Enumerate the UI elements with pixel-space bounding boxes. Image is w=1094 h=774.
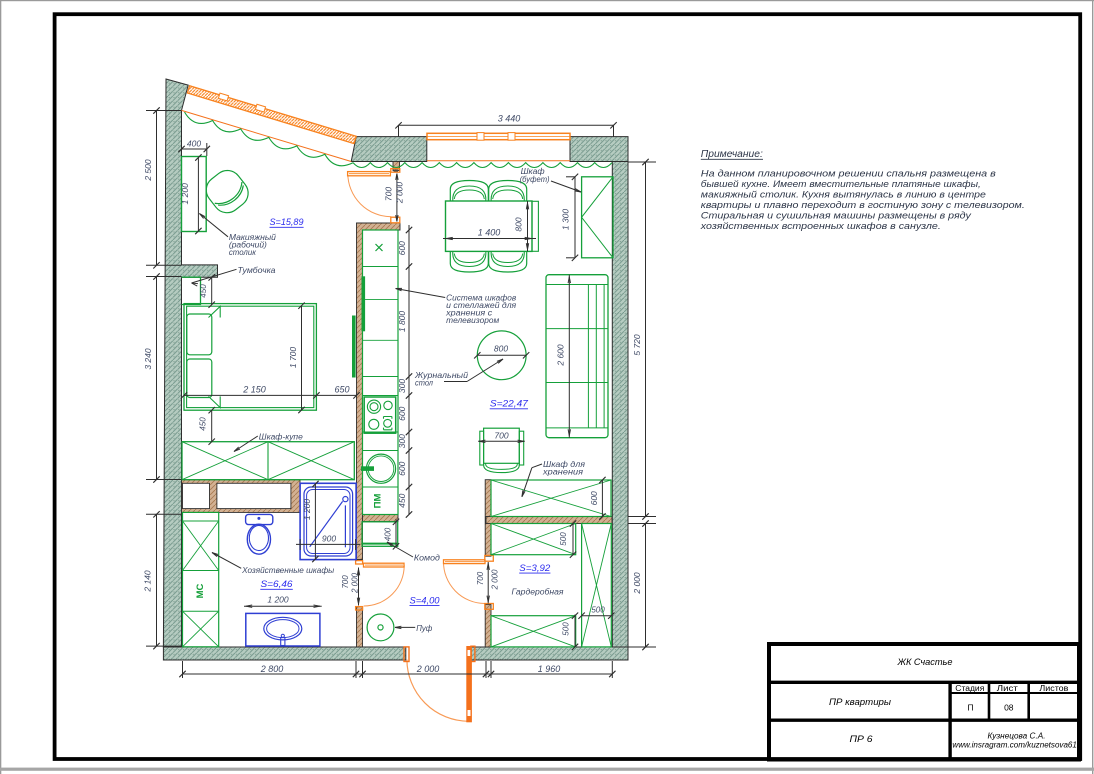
svg-text:стол: стол (415, 378, 434, 387)
svg-text:П: П (967, 703, 973, 713)
svg-text:Стиральная и сушильная машины: Стиральная и сушильная машины размещены … (701, 210, 973, 220)
svg-text:S=6,46: S=6,46 (261, 579, 294, 590)
svg-text:Хозяйственные шкафы: Хозяйственные шкафы (241, 566, 334, 575)
svg-text:1 800: 1 800 (397, 311, 407, 333)
svg-text:Пуф: Пуф (416, 624, 432, 633)
svg-text:Тумбочка: Тумбочка (238, 266, 277, 275)
svg-text:1 300: 1 300 (561, 209, 571, 231)
svg-text:квартиры и плавно переходит в: квартиры и плавно переходит в гостиную з… (701, 200, 1025, 210)
svg-text:1 200: 1 200 (180, 183, 190, 205)
svg-text:МС: МС (195, 583, 206, 598)
svg-text:500: 500 (559, 532, 568, 546)
svg-text:ЖК Счастье: ЖК Счастье (897, 657, 953, 668)
svg-text:бывшей кухне. Имеет вместитель: бывшей кухне. Имеет вместительные платян… (701, 179, 981, 189)
svg-text:800: 800 (514, 217, 524, 231)
svg-text:Примечание:: Примечание: (701, 149, 763, 160)
svg-text:400: 400 (384, 527, 393, 541)
svg-text:хранения: хранения (542, 468, 584, 477)
svg-text:1 200: 1 200 (302, 499, 312, 521)
svg-text:S=3,92: S=3,92 (519, 563, 551, 574)
svg-text:(буфет): (буфет) (520, 175, 550, 184)
svg-text:На данном планировочном решени: На данном планировочном решении спальня … (701, 169, 996, 179)
svg-text:телевизором: телевизором (446, 316, 500, 325)
svg-text:300: 300 (397, 434, 407, 448)
svg-text:08: 08 (1004, 703, 1014, 713)
svg-text:700: 700 (383, 187, 393, 201)
svg-text:2 000: 2 000 (491, 569, 500, 591)
svg-text:Комод: Комод (414, 553, 441, 562)
svg-text:2 600: 2 600 (555, 344, 565, 367)
svg-text:S=4,00: S=4,00 (410, 595, 441, 606)
svg-text:столик: столик (229, 248, 256, 257)
svg-text:600: 600 (397, 241, 407, 255)
svg-text:Листов: Листов (1039, 684, 1068, 693)
svg-text:2 000: 2 000 (416, 664, 440, 674)
svg-text:2 800: 2 800 (260, 664, 284, 674)
svg-text:Кузнецова С.А.: Кузнецова С.А. (988, 731, 1046, 740)
svg-text:Стадия: Стадия (955, 684, 984, 693)
svg-text:макияжный столик. Кухня вытяну: макияжный столик. Кухня вытянулась в лин… (701, 189, 986, 199)
svg-text:500: 500 (591, 605, 605, 614)
svg-text:700: 700 (494, 431, 508, 441)
svg-text:2 000: 2 000 (394, 182, 404, 205)
svg-text:S=22,47: S=22,47 (490, 399, 529, 410)
svg-text:3 240: 3 240 (143, 348, 153, 370)
svg-text:700: 700 (476, 571, 485, 585)
svg-text:Шкаф-купе: Шкаф-купе (259, 432, 304, 441)
svg-text:600: 600 (589, 491, 599, 505)
svg-text:600: 600 (397, 461, 407, 475)
svg-text:2 140: 2 140 (143, 570, 153, 593)
svg-text:ПМ: ПМ (373, 494, 384, 509)
svg-text:2 150: 2 150 (242, 384, 266, 394)
svg-text:2 000: 2 000 (350, 572, 359, 594)
svg-text:Лист: Лист (997, 684, 1019, 693)
svg-text:ПР квартиры: ПР квартиры (829, 697, 891, 708)
svg-text:хозяйственных встроенных шкафо: хозяйственных встроенных шкафов в санузл… (700, 221, 941, 231)
svg-text:S=15,89: S=15,89 (270, 217, 305, 228)
svg-text:www.insragram.com/kuznetsova61: www.insragram.com/kuznetsova615 (952, 740, 1082, 749)
svg-text:450: 450 (199, 417, 208, 431)
svg-text:1 700: 1 700 (288, 347, 298, 369)
svg-text:2 000: 2 000 (632, 572, 642, 595)
svg-text:1 400: 1 400 (478, 227, 501, 237)
svg-text:2 500: 2 500 (143, 159, 153, 182)
svg-text:700: 700 (341, 575, 350, 589)
svg-text:3 440: 3 440 (498, 114, 521, 124)
svg-text:600: 600 (397, 406, 407, 420)
svg-text:5 720: 5 720 (632, 334, 642, 356)
svg-text:ПР 6: ПР 6 (850, 734, 874, 745)
svg-text:1 200: 1 200 (267, 595, 289, 605)
svg-text:800: 800 (494, 343, 508, 353)
svg-text:1 960: 1 960 (538, 664, 561, 674)
svg-text:450: 450 (199, 284, 208, 298)
svg-text:Гардеробная: Гардеробная (512, 587, 565, 596)
svg-text:300: 300 (397, 379, 407, 393)
svg-text:400: 400 (187, 139, 201, 149)
svg-text:650: 650 (334, 384, 349, 394)
svg-text:450: 450 (397, 493, 407, 507)
svg-text:500: 500 (562, 622, 571, 636)
svg-text:900: 900 (322, 534, 336, 544)
